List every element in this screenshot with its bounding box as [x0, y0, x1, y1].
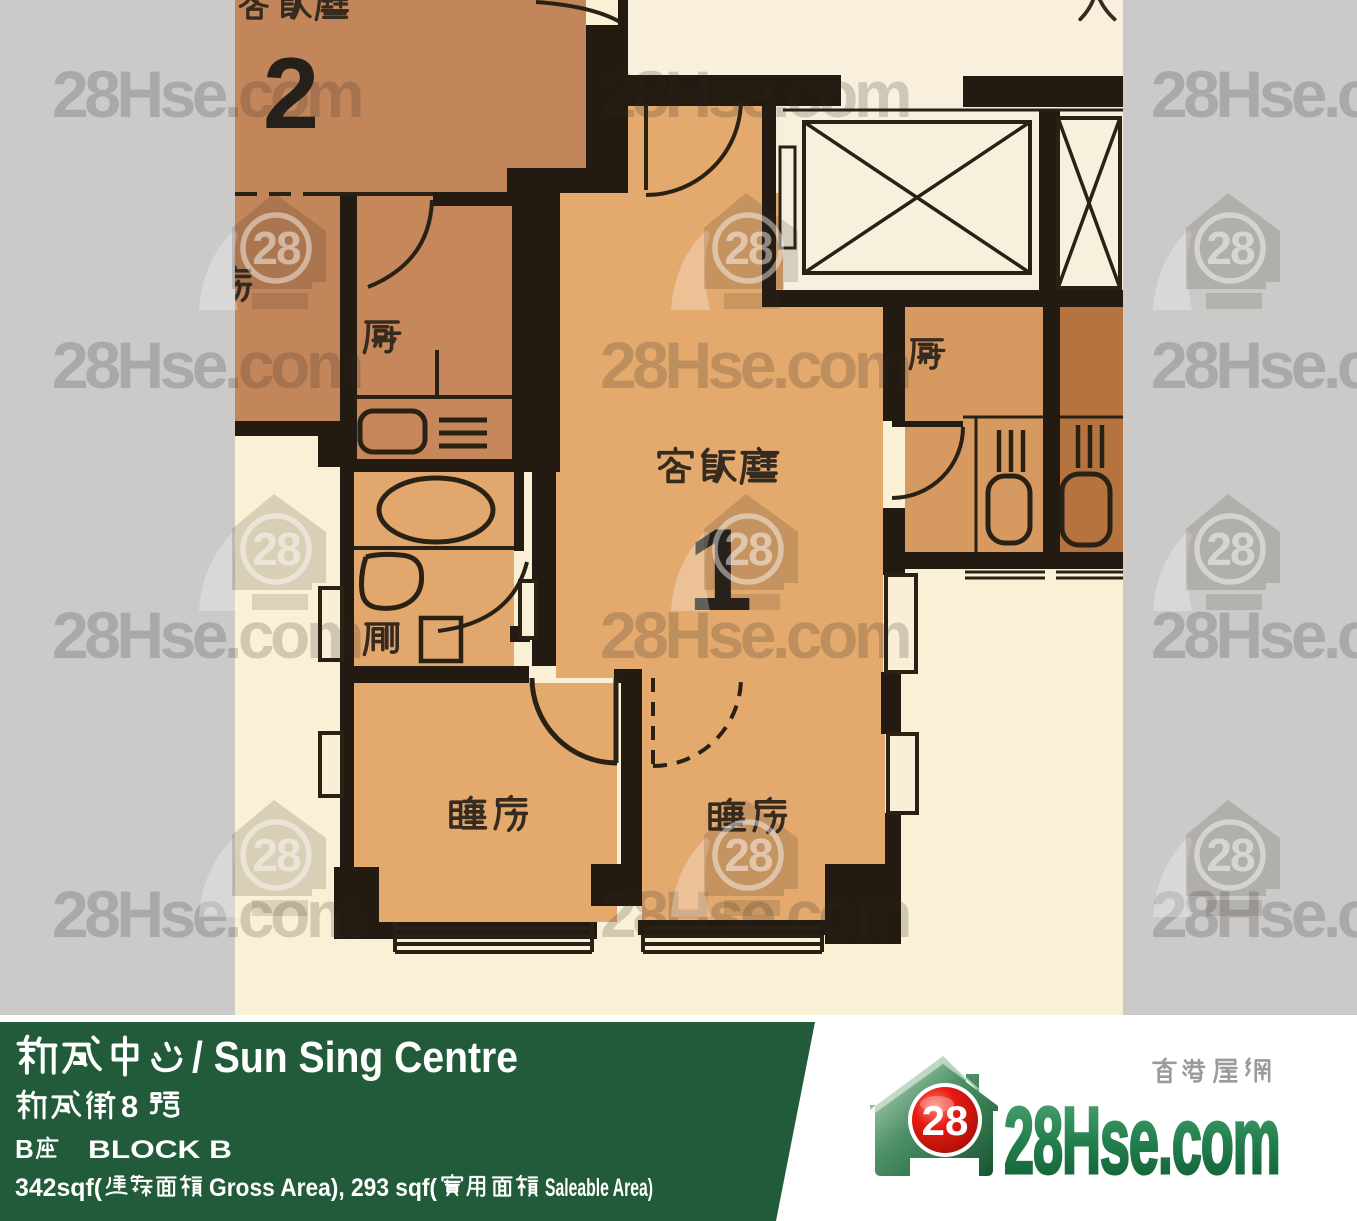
svg-text:28Hse.com: 28Hse.com: [600, 57, 909, 131]
svg-text:Gross Area), 293 sqf(: Gross Area), 293 sqf(: [209, 1174, 438, 1202]
svg-text:8: 8: [121, 1089, 138, 1124]
svg-text:28: 28: [922, 1097, 969, 1144]
svg-text:28Hse.com: 28Hse.com: [1151, 328, 1357, 402]
svg-text:28Hse.com: 28Hse.com: [1151, 57, 1357, 131]
svg-text:28Hse.com: 28Hse.com: [600, 328, 909, 402]
svg-text:28Hse.com: 28Hse.com: [52, 57, 361, 131]
svg-text:B: B: [15, 1134, 34, 1164]
svg-text:28Hse.com: 28Hse.com: [52, 328, 361, 402]
svg-text:342sqf(: 342sqf(: [15, 1174, 103, 1202]
svg-text:BLOCK B: BLOCK B: [88, 1136, 232, 1164]
svg-text:/ Sun Sing Centre: / Sun Sing Centre: [192, 1033, 518, 1082]
svg-text:28Hse.com: 28Hse.com: [1004, 1088, 1280, 1194]
svg-text:Saleable Area): Saleable Area): [545, 1174, 653, 1202]
